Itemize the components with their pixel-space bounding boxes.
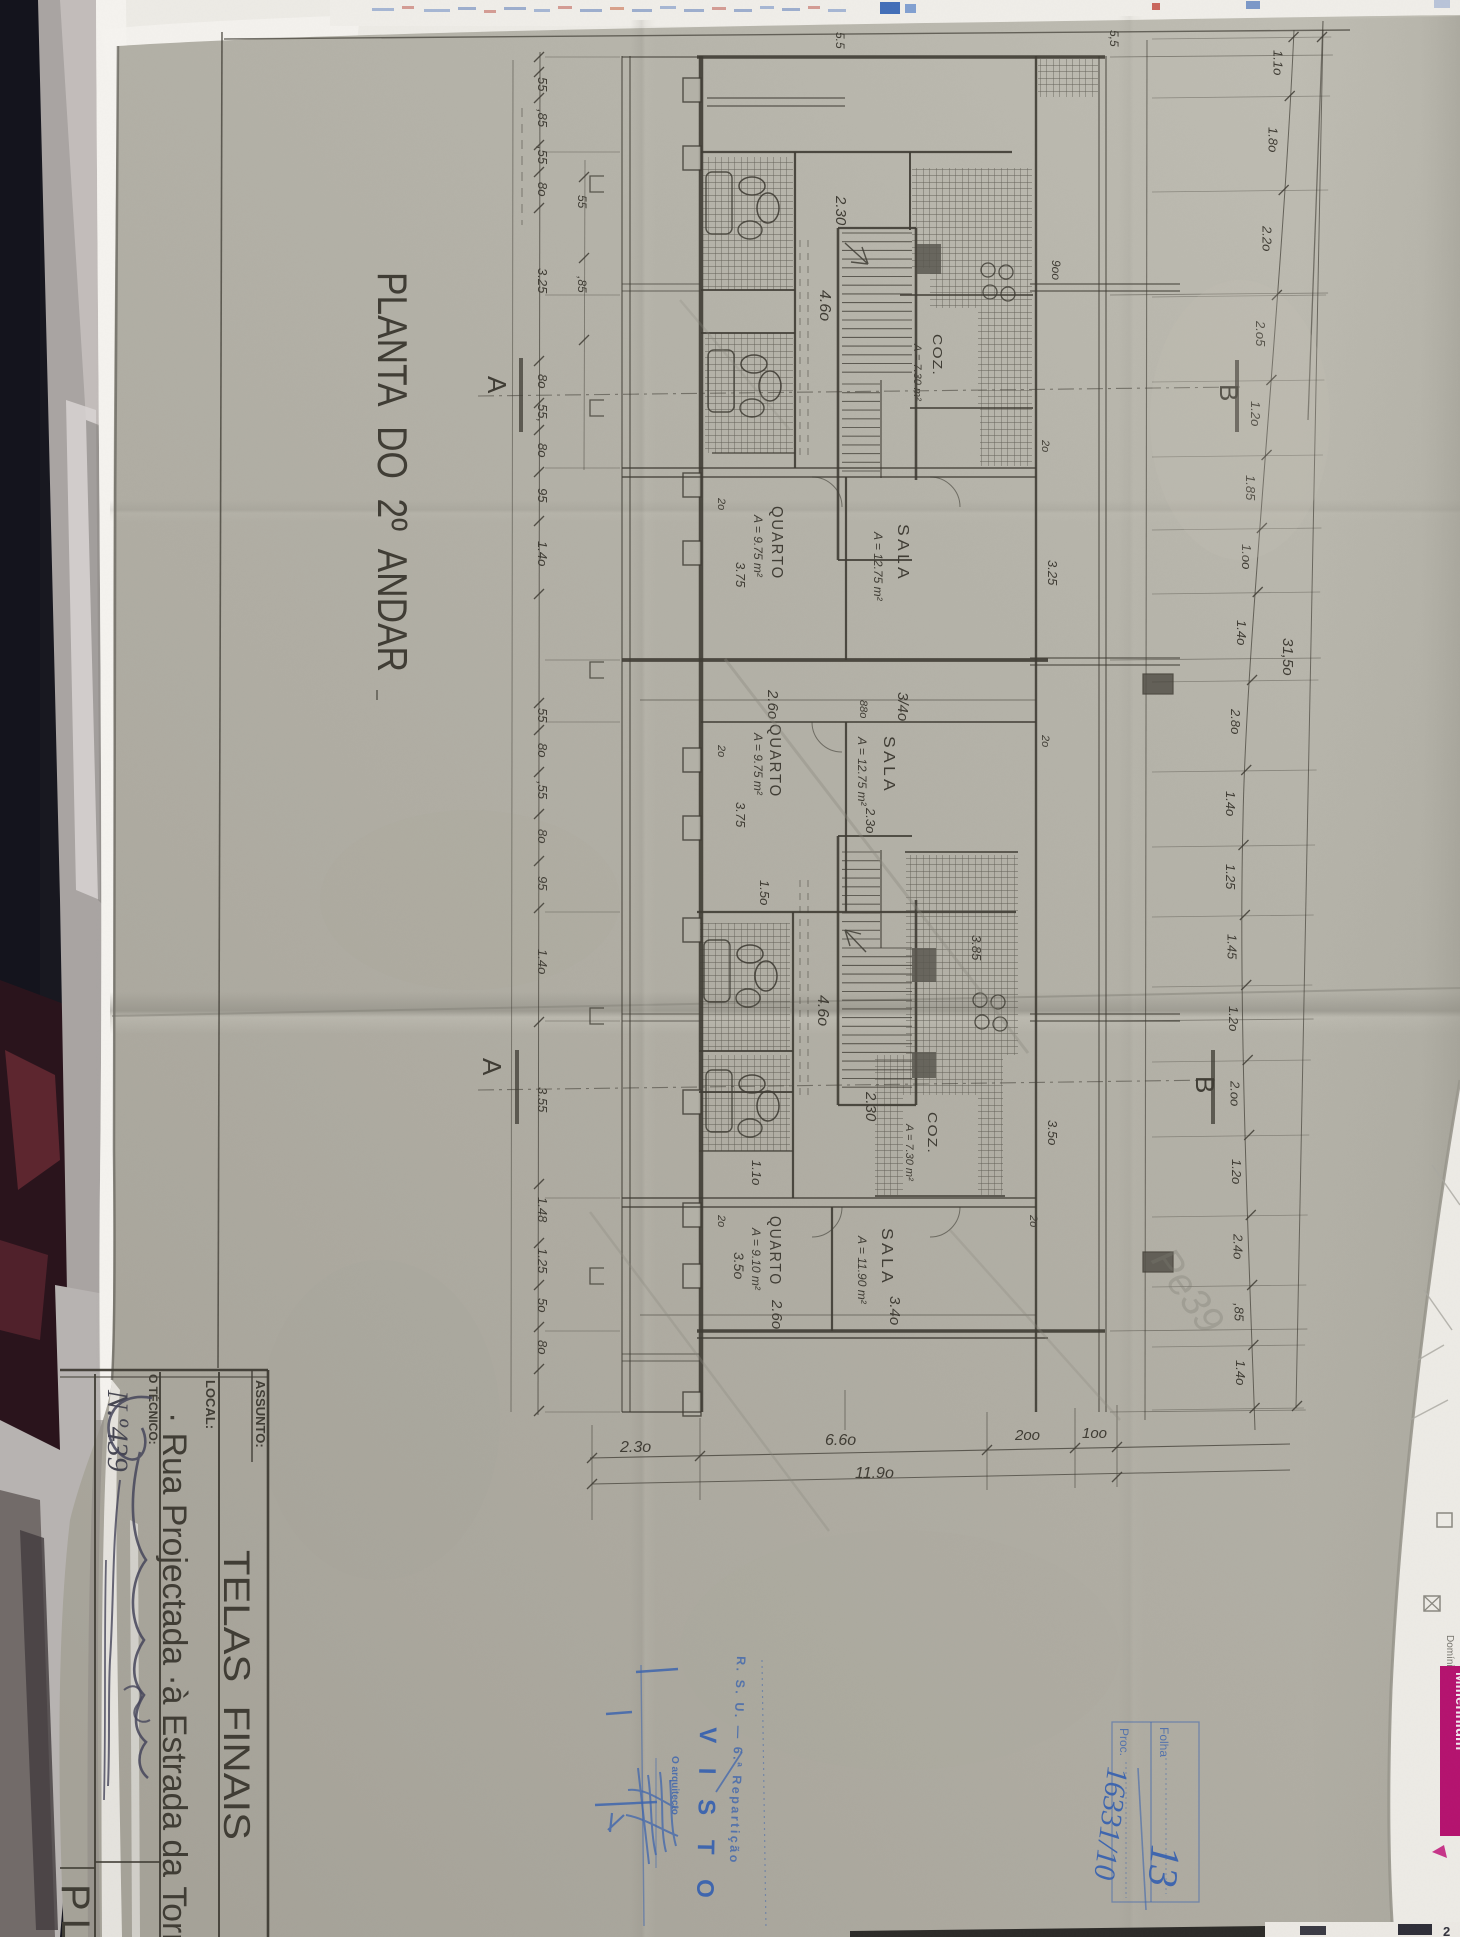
svg-text:3.25: 3.25 xyxy=(535,268,550,294)
svg-text:31,5o: 31,5o xyxy=(1279,638,1296,676)
svg-text:2.4o: 2.4o xyxy=(1230,1233,1245,1259)
svg-text:1oo: 1oo xyxy=(1082,1425,1107,1442)
svg-text:55: 55 xyxy=(535,708,550,723)
svg-text:4.6o: 4.6o xyxy=(816,290,833,321)
svg-text:1.2o: 1.2o xyxy=(1226,1006,1241,1031)
svg-text:2.oo: 2.oo xyxy=(1227,1080,1242,1106)
svg-text:O TÉCNICO:: O TÉCNICO: xyxy=(146,1374,161,1445)
svg-text:B: B xyxy=(1190,1076,1220,1093)
svg-text:3.75: 3.75 xyxy=(733,802,748,828)
svg-text:2o: 2o xyxy=(1039,734,1051,747)
svg-text:QUARTO: QUARTO xyxy=(766,1216,783,1286)
svg-text:1.4o: 1.4o xyxy=(535,541,550,566)
svg-text:3.85: 3.85 xyxy=(969,935,984,961)
svg-text:5o: 5o xyxy=(535,1298,550,1312)
svg-text:SALA: SALA xyxy=(878,1228,895,1286)
svg-text:,55: ,55 xyxy=(535,146,550,165)
svg-text:1.2o: 1.2o xyxy=(1229,1159,1244,1184)
svg-text:PL: PL xyxy=(53,1884,97,1937)
svg-text:COZ.: COZ. xyxy=(925,1112,940,1154)
svg-text:1.25: 1.25 xyxy=(1223,864,1238,890)
svg-text:A = 9.75 m²: A = 9.75 m² xyxy=(751,732,765,796)
svg-text:SALA: SALA xyxy=(880,736,897,794)
svg-text:,55: ,55 xyxy=(535,781,550,800)
svg-text:QUARTO: QUARTO xyxy=(766,724,783,798)
svg-text:A = 7.30 m²: A = 7.30 m² xyxy=(903,1123,915,1181)
svg-text:2.3o: 2.3o xyxy=(863,807,878,833)
svg-text:· Rua Projectada ·à Estrada da: · Rua Projectada ·à Estrada da Torri xyxy=(155,1412,193,1937)
svg-text:1.48: 1.48 xyxy=(535,1197,550,1223)
svg-text:55: 55 xyxy=(535,77,550,92)
svg-text:,85: ,85 xyxy=(575,276,589,293)
svg-text:4.6o: 4.6o xyxy=(814,995,831,1026)
svg-text:1.8o: 1.8o xyxy=(1266,127,1281,152)
svg-text:TELAS FINAIS: TELAS FINAIS xyxy=(216,1550,257,1840)
svg-text:3.75: 3.75 xyxy=(733,562,748,588)
svg-text:Folha: Folha xyxy=(1157,1727,1171,1757)
svg-text:1.4o: 1.4o xyxy=(1233,1360,1248,1385)
svg-text:A = 12.75 m²: A = 12.75 m² xyxy=(855,736,869,807)
svg-text:1.1o: 1.1o xyxy=(749,1160,764,1185)
svg-text:3.55: 3.55 xyxy=(535,1087,550,1113)
svg-text:3.5o: 3.5o xyxy=(731,1252,747,1279)
svg-text:2.2o: 2.2o xyxy=(1259,225,1274,251)
svg-text:2.8o: 2.8o xyxy=(1228,708,1243,734)
svg-text:3.5o: 3.5o xyxy=(1045,1120,1060,1145)
svg-text:13: 13 xyxy=(1138,1843,1187,1889)
svg-text:5.5: 5.5 xyxy=(833,32,847,49)
svg-text:A: A xyxy=(477,1058,507,1076)
svg-text:2.30: 2.30 xyxy=(862,1091,879,1122)
svg-text:95: 95 xyxy=(535,488,550,503)
svg-text:8o: 8o xyxy=(535,743,550,757)
svg-text:ASSUNTO:: ASSUNTO: xyxy=(253,1380,268,1448)
svg-text:,85: ,85 xyxy=(1232,1303,1247,1322)
svg-text:2.30: 2.30 xyxy=(832,195,849,226)
svg-text:V I S T O: V I S T O xyxy=(691,1727,721,1907)
svg-text:2.3o: 2.3o xyxy=(619,1439,651,1456)
svg-text:1.4o: 1.4o xyxy=(1223,791,1238,816)
svg-text:6.6o: 6.6o xyxy=(825,1432,856,1449)
svg-text:9oo: 9oo xyxy=(1049,260,1063,280)
svg-text:2o: 2o xyxy=(1027,1214,1039,1227)
svg-text:2o: 2o xyxy=(715,744,727,757)
svg-text:2.6o: 2.6o xyxy=(768,1299,785,1329)
svg-text:2o: 2o xyxy=(715,1214,727,1227)
svg-text:Proc.: Proc. xyxy=(1117,1728,1131,1756)
svg-text:3/4o: 3/4o xyxy=(894,692,911,721)
svg-text:1.4o: 1.4o xyxy=(1234,620,1249,645)
svg-text:55,: 55, xyxy=(535,404,550,422)
svg-text:3.4o: 3.4o xyxy=(886,1296,903,1325)
svg-text:8o: 8o xyxy=(535,182,550,196)
svg-text:1.5o: 1.5o xyxy=(757,880,772,905)
svg-text:COZ.: COZ. xyxy=(930,334,945,376)
svg-text:11.9o: 11.9o xyxy=(855,1465,894,1482)
svg-text:QUARTO: QUARTO xyxy=(768,506,785,580)
svg-text:3.25: 3.25 xyxy=(1045,560,1060,586)
svg-text:PLANTA DO 2º ANDAR: PLANTA DO 2º ANDAR xyxy=(369,272,416,672)
svg-text:8o: 8o xyxy=(535,1340,550,1354)
svg-text:2oo: 2oo xyxy=(1014,1427,1040,1444)
svg-text:A = 11.90 m²: A = 11.90 m² xyxy=(855,1235,869,1305)
svg-text:LOCAL:: LOCAL: xyxy=(203,1380,218,1429)
svg-text:1.45: 1.45 xyxy=(1225,934,1240,960)
svg-text:A: A xyxy=(482,376,512,394)
svg-text:55: 55 xyxy=(575,195,589,209)
svg-text:A = 7.30 m²: A = 7.30 m² xyxy=(911,343,923,401)
svg-text:1.1o: 1.1o xyxy=(1271,50,1286,75)
svg-text:A = 12.75 m²: A = 12.75 m² xyxy=(871,531,885,602)
svg-text:1.25: 1.25 xyxy=(535,1248,550,1274)
svg-text:A = 9.75 m²: A = 9.75 m² xyxy=(751,514,765,578)
svg-text:88o: 88o xyxy=(857,700,869,718)
svg-text:8o: 8o xyxy=(535,374,550,388)
svg-text:5,5: 5,5 xyxy=(1107,30,1121,47)
svg-text:A = 9.10 m²: A = 9.10 m² xyxy=(749,1227,763,1291)
svg-text:,85: ,85 xyxy=(535,109,550,128)
svg-text:SALA: SALA xyxy=(894,524,911,582)
svg-text:8o: 8o xyxy=(535,443,550,457)
svg-text:2o: 2o xyxy=(715,497,727,510)
svg-text:2o: 2o xyxy=(1039,439,1051,452)
